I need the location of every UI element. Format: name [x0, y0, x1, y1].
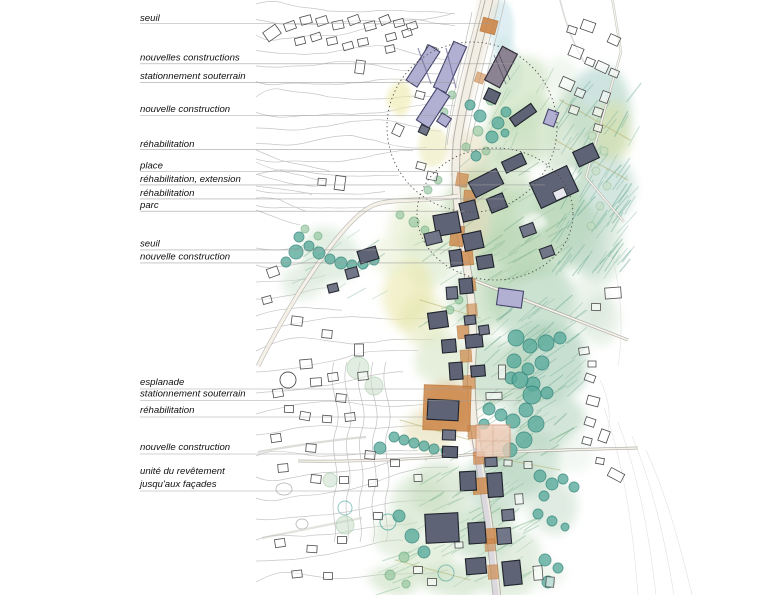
svg-text:nouvelle construction: nouvelle construction	[140, 442, 230, 453]
svg-text:nouvelles constructions: nouvelles constructions	[140, 53, 240, 64]
svg-text:parc: parc	[139, 200, 159, 211]
svg-text:unité du revêtement: unité du revêtement	[140, 466, 225, 477]
svg-text:jusqu'aux façades: jusqu'aux façades	[138, 479, 217, 490]
svg-text:réhabilitation: réhabilitation	[140, 405, 194, 416]
svg-text:seuil: seuil	[140, 13, 161, 24]
svg-text:réhabilitation: réhabilitation	[140, 139, 194, 150]
svg-text:stationnement souterrain: stationnement souterrain	[140, 71, 246, 82]
svg-text:nouvelle construction: nouvelle construction	[140, 251, 230, 262]
svg-text:nouvelle construction: nouvelle construction	[140, 104, 230, 115]
svg-text:stationnement souterrain: stationnement souterrain	[140, 389, 246, 400]
svg-text:seuil: seuil	[140, 239, 161, 250]
svg-text:réhabilitation: réhabilitation	[140, 188, 194, 199]
svg-text:place: place	[139, 161, 163, 172]
svg-text:esplanade: esplanade	[140, 377, 184, 388]
svg-text:réhabilitation, extension: réhabilitation, extension	[140, 174, 241, 185]
